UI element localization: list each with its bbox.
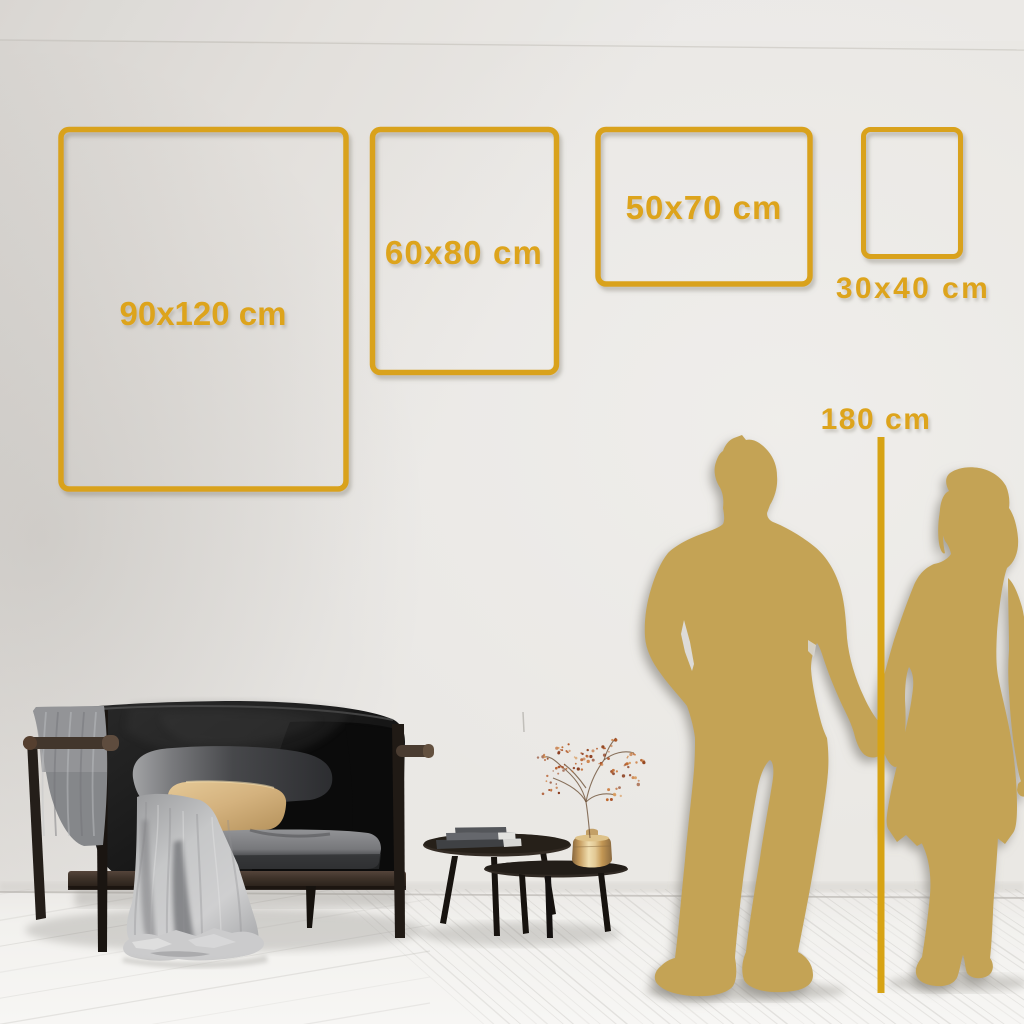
svg-text:90x120 cm: 90x120 cm (120, 295, 287, 332)
svg-text:180 cm: 180 cm (821, 403, 932, 436)
svg-text:50x70 cm: 50x70 cm (626, 189, 783, 226)
svg-text:60x80 cm: 60x80 cm (385, 234, 543, 271)
svg-text:30x40 cm: 30x40 cm (836, 272, 990, 305)
